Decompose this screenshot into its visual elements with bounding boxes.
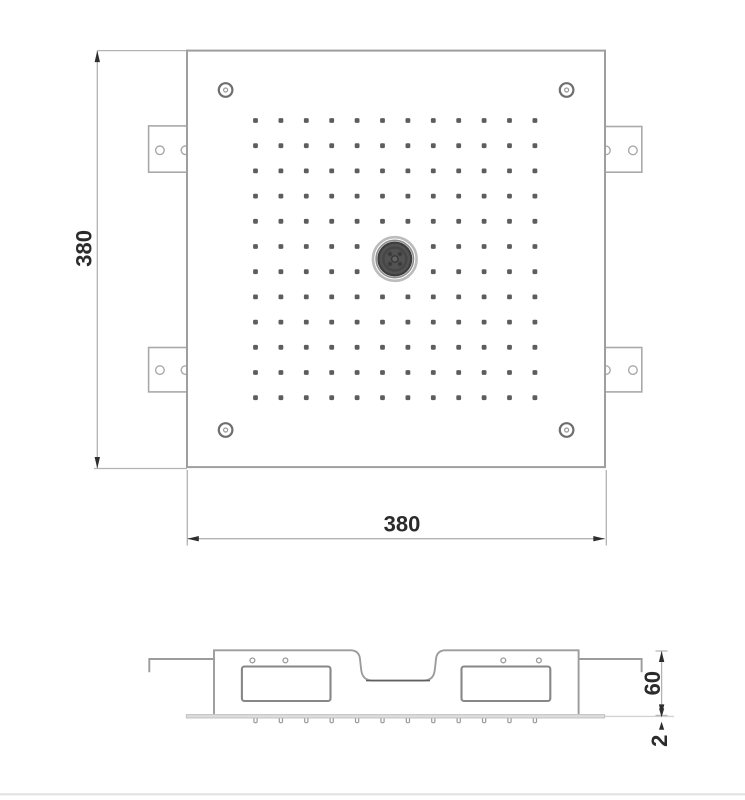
svg-text:380: 380 (72, 230, 97, 267)
svg-text:60: 60 (640, 671, 665, 695)
svg-text:2: 2 (647, 735, 672, 747)
svg-text:380: 380 (384, 512, 421, 537)
